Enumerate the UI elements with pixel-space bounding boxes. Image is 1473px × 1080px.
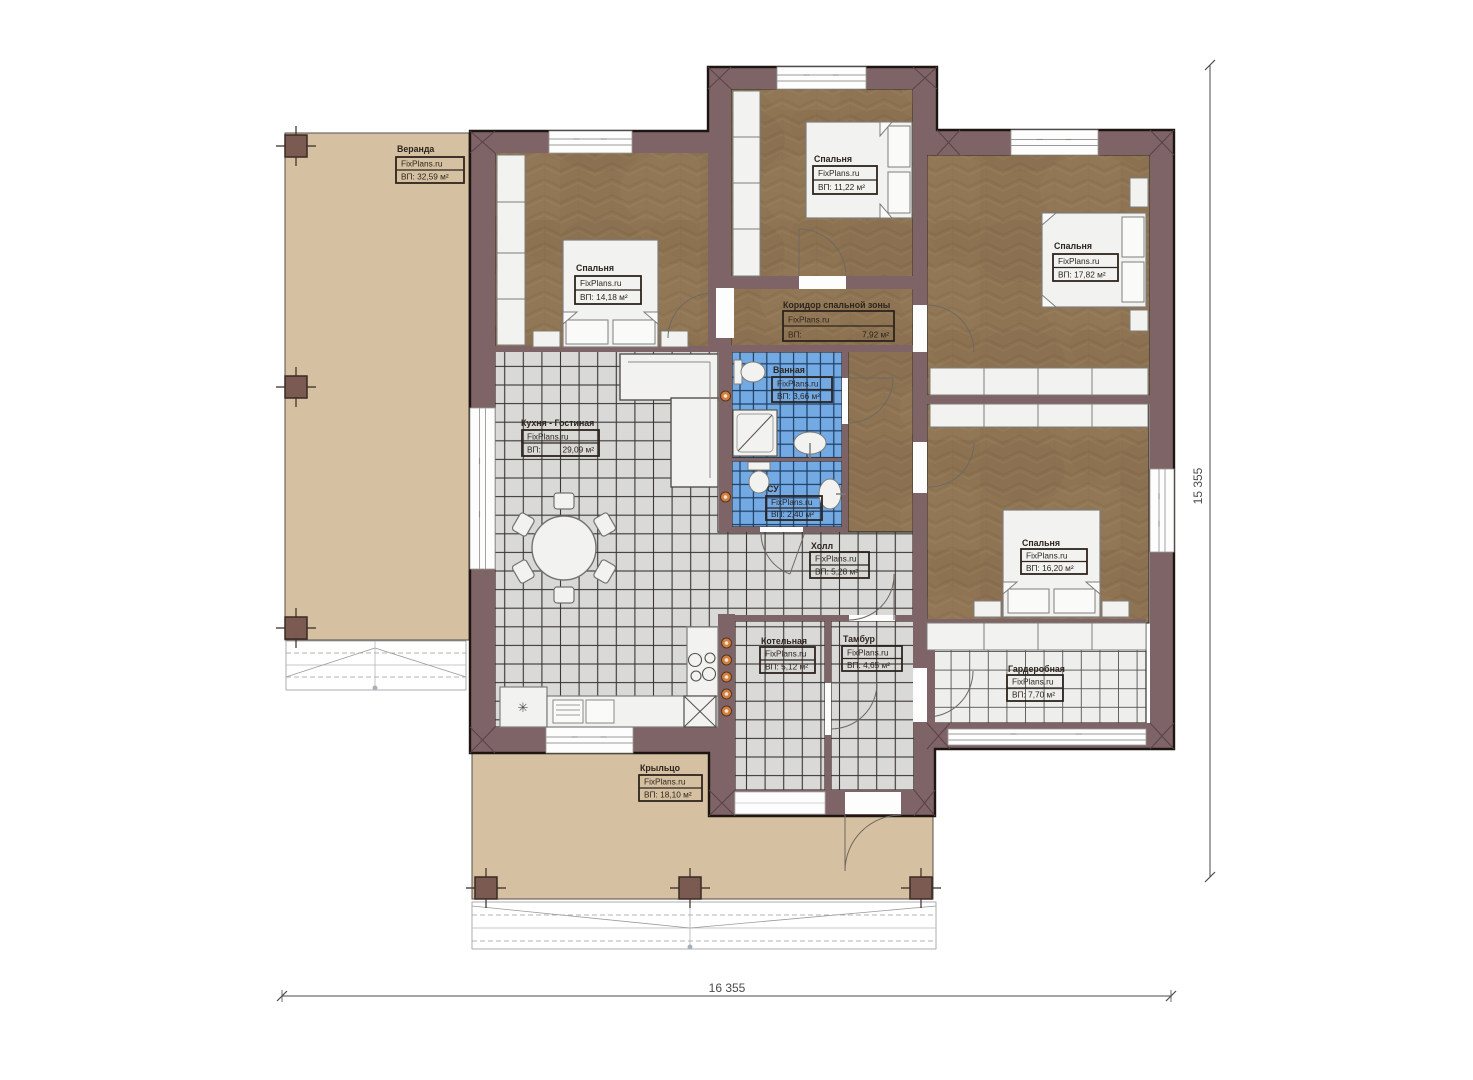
svg-text:Спальня: Спальня xyxy=(576,263,614,273)
svg-text:FixPlans.ru: FixPlans.ru xyxy=(1058,256,1100,266)
svg-text:FixPlans.ru: FixPlans.ru xyxy=(847,647,889,657)
svg-text:Спальня: Спальня xyxy=(814,154,852,164)
svg-text:15 355: 15 355 xyxy=(1191,467,1205,504)
svg-text:ВП: 3,66 м²: ВП: 3,66 м² xyxy=(777,391,820,401)
svg-text:FixPlans.ru: FixPlans.ru xyxy=(815,554,857,564)
svg-text:Веранда: Веранда xyxy=(397,144,434,154)
svg-text:FixPlans.ru: FixPlans.ru xyxy=(818,168,860,178)
svg-text:FixPlans.ru: FixPlans.ru xyxy=(777,378,819,388)
svg-text:ВП:: ВП: xyxy=(527,445,541,455)
svg-text:Гардеробная: Гардеробная xyxy=(1008,664,1065,674)
svg-text:ВП: 32,59 м²: ВП: 32,59 м² xyxy=(401,172,449,182)
svg-text:FixPlans.ru: FixPlans.ru xyxy=(644,777,686,787)
svg-text:FixPlans.ru: FixPlans.ru xyxy=(771,497,813,507)
svg-text:ВП: 7,70 м²: ВП: 7,70 м² xyxy=(1012,690,1055,700)
svg-text:ВП:: ВП: xyxy=(788,330,802,340)
svg-text:Спальня: Спальня xyxy=(1022,538,1060,548)
svg-text:Холл: Холл xyxy=(811,541,833,551)
svg-text:FixPlans.ru: FixPlans.ru xyxy=(401,159,443,169)
svg-text:Тамбур: Тамбур xyxy=(843,634,876,644)
svg-text:Крыльцо: Крыльцо xyxy=(640,763,681,773)
svg-text:Коридор спальной зоны: Коридор спальной зоны xyxy=(783,300,890,310)
svg-text:ВП: 5,12 м²: ВП: 5,12 м² xyxy=(765,662,808,672)
svg-text:16 355: 16 355 xyxy=(709,981,746,995)
svg-text:FixPlans.ru: FixPlans.ru xyxy=(788,315,830,325)
svg-text:FixPlans.ru: FixPlans.ru xyxy=(1012,677,1054,687)
svg-text:29,09 м²: 29,09 м² xyxy=(562,445,594,455)
svg-text:FixPlans.ru: FixPlans.ru xyxy=(527,432,569,442)
svg-text:✳: ✳ xyxy=(518,700,529,715)
svg-text:ВП: 14,18 м²: ВП: 14,18 м² xyxy=(580,292,628,302)
svg-text:7,92 м²: 7,92 м² xyxy=(862,330,889,340)
svg-text:Кухня - Гостиная: Кухня - Гостиная xyxy=(521,418,594,428)
svg-text:СУ: СУ xyxy=(767,484,779,494)
svg-text:ВП: 11,22 м²: ВП: 11,22 м² xyxy=(818,182,865,192)
svg-text:ВП: 18,10 м²: ВП: 18,10 м² xyxy=(644,790,692,800)
svg-text:Спальня: Спальня xyxy=(1054,241,1092,251)
svg-text:FixPlans.ru: FixPlans.ru xyxy=(580,278,622,288)
svg-text:ВП: 4,65 м²: ВП: 4,65 м² xyxy=(847,660,890,670)
svg-text:Котельная: Котельная xyxy=(761,636,807,646)
svg-text:ВП: 17,82 м²: ВП: 17,82 м² xyxy=(1058,269,1106,279)
svg-text:ВП: 2,40 м²: ВП: 2,40 м² xyxy=(771,509,814,519)
svg-text:FixPlans.ru: FixPlans.ru xyxy=(1026,550,1068,560)
svg-text:ВП: 16,20 м²: ВП: 16,20 м² xyxy=(1026,563,1074,573)
svg-text:FixPlans.ru: FixPlans.ru xyxy=(765,649,807,659)
svg-text:Ванная: Ванная xyxy=(773,365,805,375)
svg-text:ВП: 5,28 м²: ВП: 5,28 м² xyxy=(815,567,858,577)
